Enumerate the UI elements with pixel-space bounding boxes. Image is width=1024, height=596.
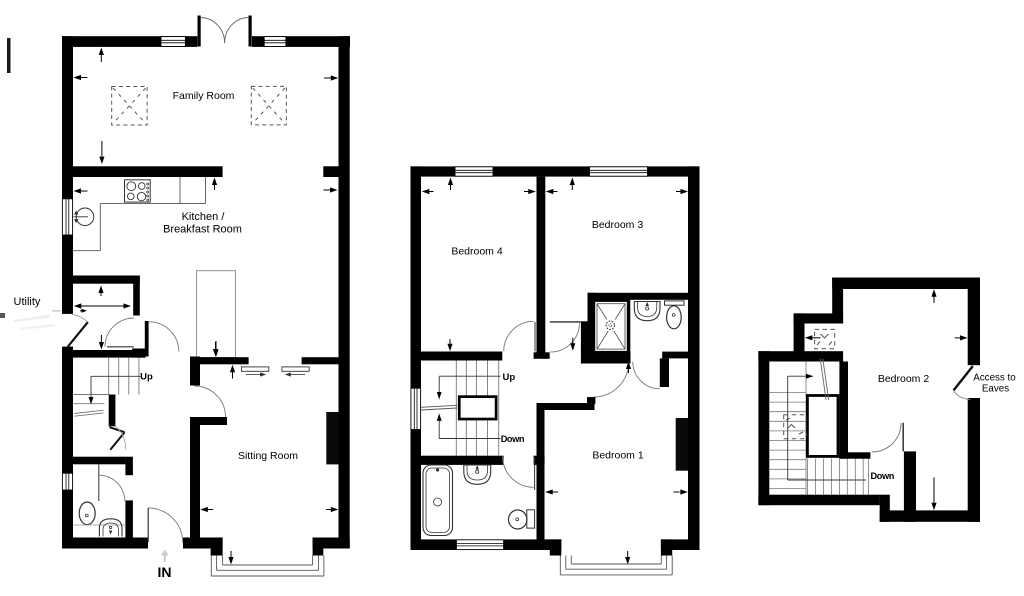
svg-text:Family Room: Family Room (173, 90, 235, 102)
svg-text:Down: Down (871, 471, 895, 481)
svg-text:Breakfast Room: Breakfast Room (163, 224, 242, 236)
svg-text:IN: IN (158, 564, 172, 580)
svg-text:Kitchen /: Kitchen / (182, 211, 226, 223)
svg-text:Bedroom 4: Bedroom 4 (451, 246, 503, 258)
svg-text:Up: Up (140, 372, 153, 383)
svg-text:Utility: Utility (14, 296, 41, 308)
svg-text:Down: Down (501, 434, 525, 444)
svg-text:Access to: Access to (973, 373, 1016, 384)
svg-text:Up: Up (503, 372, 516, 383)
svg-text:Bedroom 3: Bedroom 3 (592, 219, 644, 231)
svg-text:Sitting Room: Sitting Room (238, 450, 298, 462)
svg-text:Eaves: Eaves (982, 384, 1009, 395)
svg-text:Bedroom 2: Bedroom 2 (878, 373, 930, 385)
svg-text:Bedroom 1: Bedroom 1 (592, 450, 644, 462)
